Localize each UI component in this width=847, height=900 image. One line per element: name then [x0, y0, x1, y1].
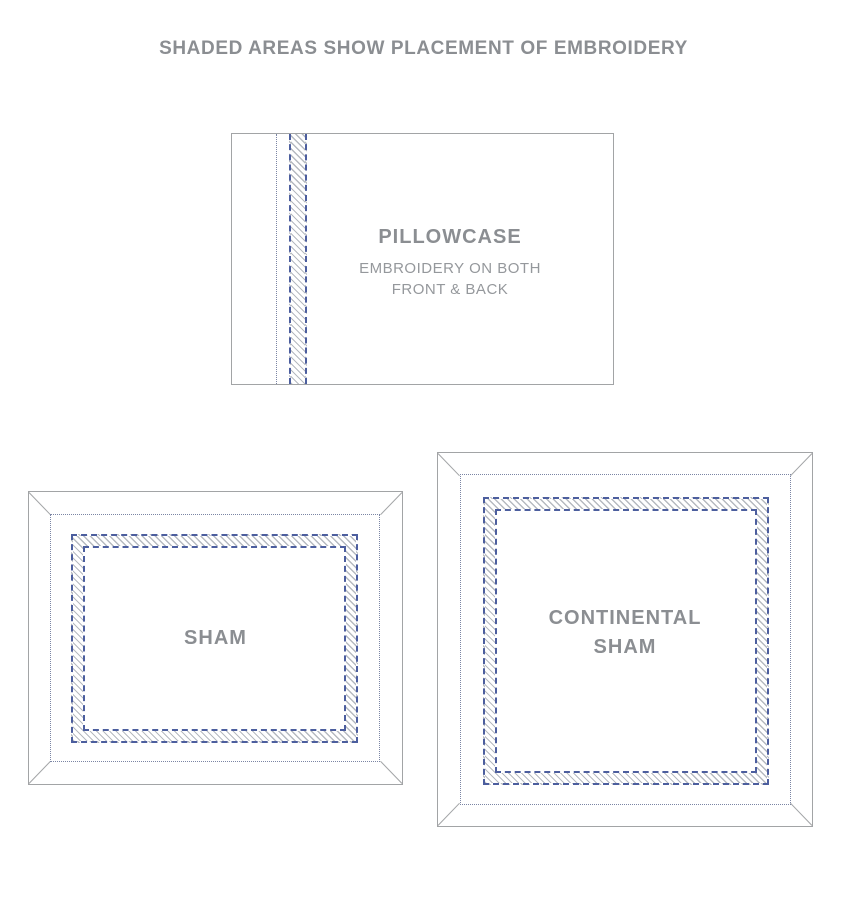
- sham-label: SHAM: [29, 492, 402, 784]
- pillowcase-sublabel-line1: EMBROIDERY ON BOTH: [301, 258, 599, 279]
- embroidery-placement-diagram: SHADED AREAS SHOW PLACEMENT OF EMBROIDER…: [0, 0, 847, 900]
- page-title: SHADED AREAS SHOW PLACEMENT OF EMBROIDER…: [0, 38, 847, 60]
- pillowcase-label: PILLOWCASE: [301, 226, 599, 249]
- pillowcase-diagram: PILLOWCASE EMBROIDERY ON BOTH FRONT & BA…: [231, 133, 614, 385]
- sham-diagram: SHAM: [28, 491, 403, 785]
- continental-sham-label-line2: SHAM: [594, 633, 657, 662]
- continental-sham-diagram: CONTINENTAL SHAM: [437, 452, 813, 827]
- pillowcase-fold-stitch-line: [276, 134, 277, 384]
- sham-label-text: SHAM: [184, 624, 247, 653]
- continental-sham-label: CONTINENTAL SHAM: [438, 446, 812, 819]
- pillowcase-sublabel-line2: FRONT & BACK: [301, 279, 599, 300]
- continental-sham-label-line1: CONTINENTAL: [549, 604, 702, 633]
- pillowcase-label-block: PILLOWCASE EMBROIDERY ON BOTH FRONT & BA…: [301, 226, 599, 300]
